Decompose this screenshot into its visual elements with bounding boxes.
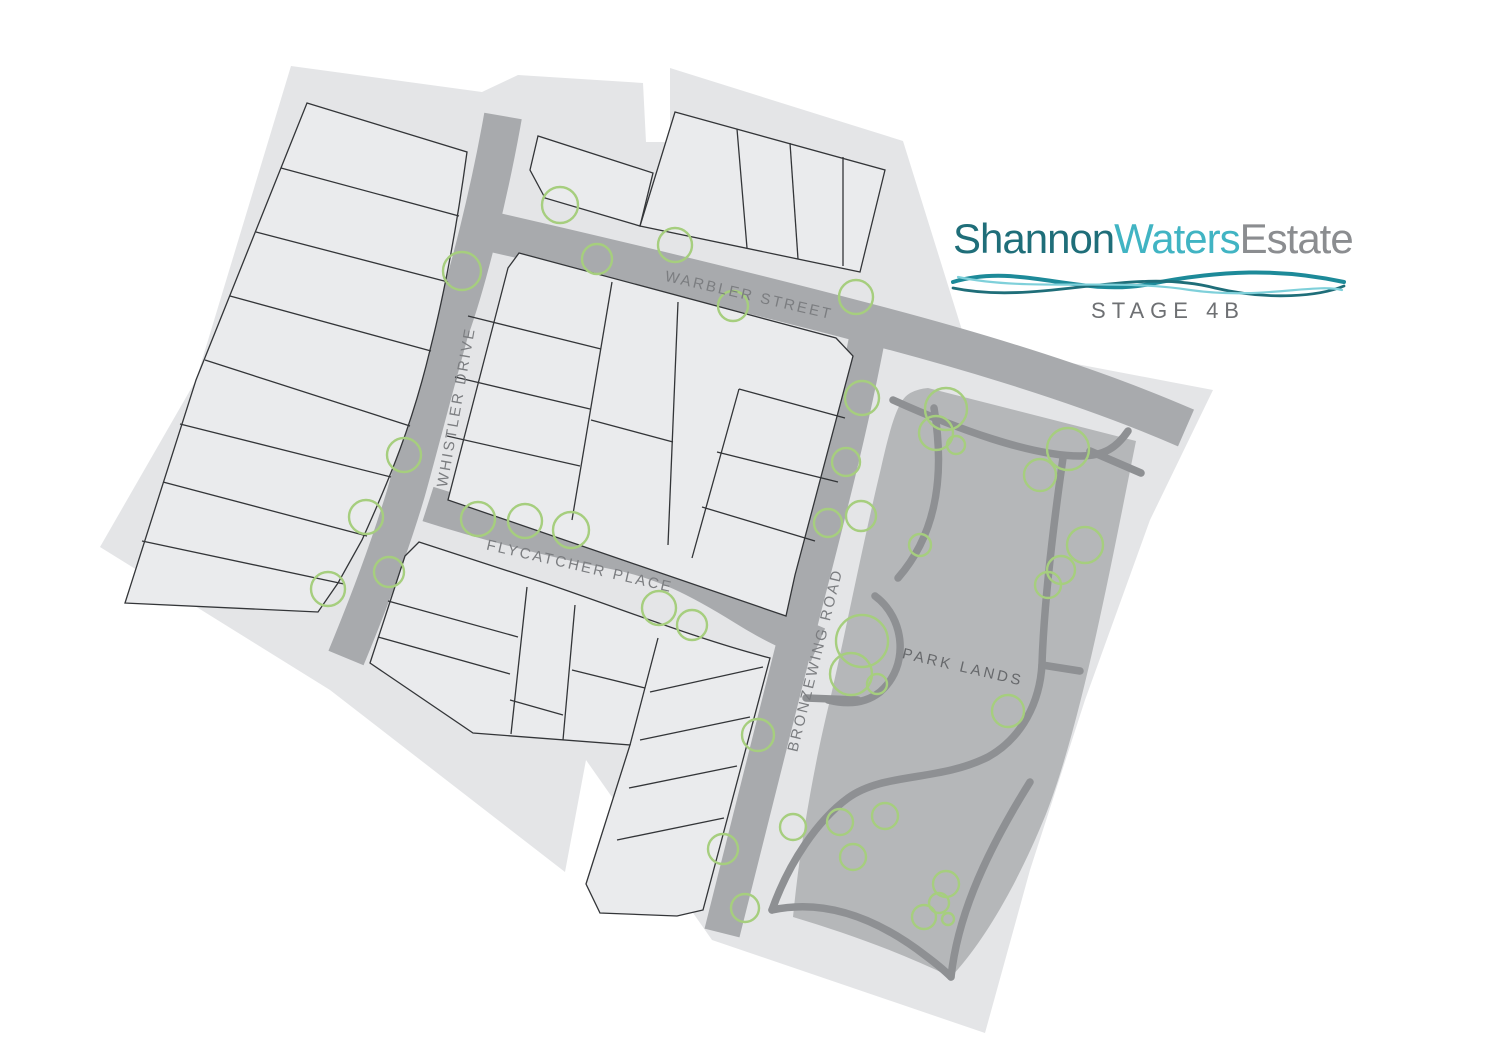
logo-waves-icon <box>953 272 1344 295</box>
logo-word-shannon: Shannon <box>953 215 1114 262</box>
logo-word-waters: Waters <box>1114 215 1239 262</box>
site-plan-map: WARBLER STREET WHISTLER DRIVE FLYCATCHER… <box>0 0 1500 1060</box>
logo: ShannonWatersEstate STAGE 4B <box>953 215 1353 323</box>
stage-label: STAGE 4B <box>1091 298 1245 323</box>
logo-wordmark: ShannonWatersEstate <box>953 215 1353 262</box>
page: WARBLER STREET WHISTLER DRIVE FLYCATCHER… <box>0 0 1500 1060</box>
logo-word-estate: Estate <box>1240 215 1353 262</box>
wave-icon <box>958 277 1342 293</box>
